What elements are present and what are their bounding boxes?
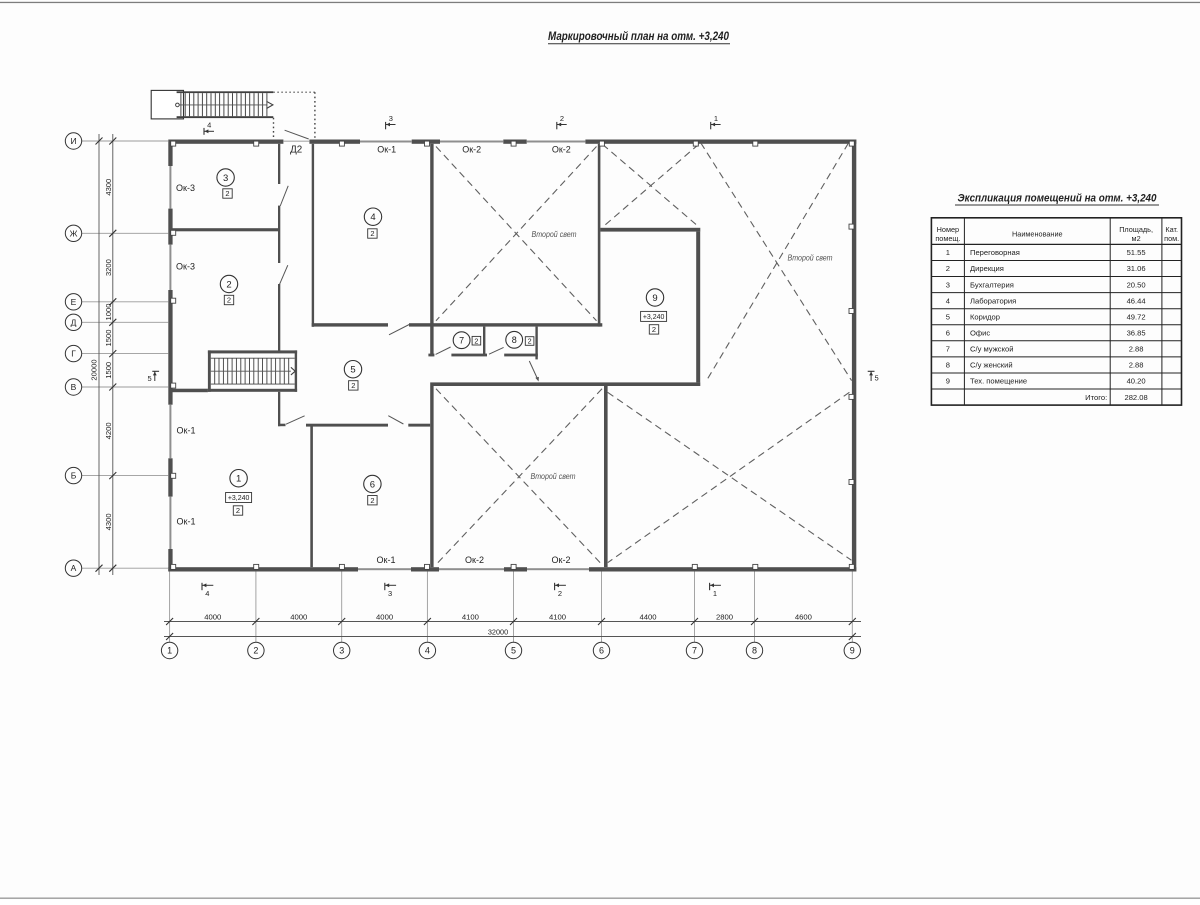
svg-text:Е: Е [71,297,77,307]
svg-text:2.88: 2.88 [1129,361,1144,370]
svg-text:Ок-3: Ок-3 [176,183,195,193]
svg-text:32000: 32000 [488,627,508,636]
svg-text:Д2: Д2 [290,145,302,156]
svg-text:Офис: Офис [970,329,990,338]
svg-text:Коридор: Коридор [970,312,1000,321]
svg-text:51.55: 51.55 [1127,248,1146,257]
svg-text:Экспликация помещений на отм.: Экспликация помещений на отм. +3,240 [958,192,1158,204]
svg-text:4: 4 [946,296,950,305]
svg-text:4300: 4300 [104,179,113,196]
svg-text:4600: 4600 [795,613,812,622]
svg-text:Кат.: Кат. [1165,225,1178,234]
svg-text:помещ.: помещ. [935,234,960,243]
svg-text:3: 3 [223,173,228,184]
svg-text:6: 6 [599,646,604,656]
svg-text:2: 2 [253,646,258,656]
svg-text:2: 2 [946,264,950,273]
svg-text:+3,240: +3,240 [643,312,665,321]
svg-text:9: 9 [946,377,950,386]
svg-text:8: 8 [946,361,950,370]
svg-text:Ок-1: Ок-1 [377,555,396,565]
svg-text:м2: м2 [1132,234,1141,243]
svg-text:Ок-2: Ок-2 [462,145,481,155]
svg-text:5: 5 [946,312,950,321]
svg-text:Лаборатория: Лаборатория [970,296,1016,305]
svg-text:2: 2 [370,496,374,505]
svg-text:2: 2 [652,325,656,334]
svg-text:5: 5 [350,365,355,376]
svg-text:Ок-2: Ок-2 [552,555,571,565]
svg-text:2: 2 [227,296,231,305]
svg-text:1: 1 [946,248,950,257]
svg-text:1500: 1500 [104,362,113,379]
svg-text:Г: Г [71,349,76,359]
svg-text:4: 4 [370,212,375,223]
svg-text:Ок-2: Ок-2 [552,145,571,155]
svg-text:4100: 4100 [549,613,566,622]
svg-text:Ок-2: Ок-2 [465,555,484,565]
svg-text:4200: 4200 [104,422,113,439]
svg-text:7: 7 [692,646,697,656]
svg-text:В: В [71,382,77,392]
svg-text:Маркировочный план на отм. +3,: Маркировочный план на отм. +3,240 [548,31,730,43]
svg-text:4000: 4000 [376,613,393,622]
svg-text:И: И [70,136,76,146]
svg-text:4: 4 [425,646,430,656]
svg-text:С/у мужской: С/у мужской [970,345,1013,354]
svg-text:8: 8 [752,646,757,656]
svg-text:Итого:: Итого: [1085,393,1107,402]
svg-text:5: 5 [511,646,516,656]
svg-text:2.88: 2.88 [1129,345,1144,354]
svg-text:1500: 1500 [104,330,113,347]
svg-text:Переговорная: Переговорная [970,248,1020,257]
svg-text:9: 9 [850,646,855,656]
svg-text:36.85: 36.85 [1127,329,1146,338]
svg-text:2: 2 [528,337,532,346]
svg-text:Дирекция: Дирекция [970,264,1004,273]
svg-text:Ок-3: Ок-3 [176,262,195,272]
svg-text:20000: 20000 [90,359,99,380]
svg-text:3: 3 [389,114,393,123]
svg-text:6: 6 [370,479,375,490]
svg-text:2: 2 [560,114,564,123]
svg-text:1: 1 [236,474,241,485]
svg-text:Б: Б [71,471,77,481]
svg-text:4000: 4000 [290,613,307,622]
svg-text:3: 3 [339,646,344,656]
svg-text:46.44: 46.44 [1127,296,1146,305]
svg-text:Второй свет: Второй свет [532,229,577,239]
svg-text:282.08: 282.08 [1124,393,1147,402]
svg-text:С/у женский: С/у женский [970,361,1013,370]
svg-text:Площадь,: Площадь, [1119,225,1153,234]
svg-text:4: 4 [207,121,211,130]
svg-text:1: 1 [713,589,717,598]
svg-text:1: 1 [714,114,718,123]
svg-text:2: 2 [236,506,240,515]
svg-text:2: 2 [225,189,229,198]
svg-text:Бухгалтерия: Бухгалтерия [970,280,1014,289]
svg-text:2: 2 [351,381,355,390]
svg-text:Тех. помещение: Тех. помещение [970,377,1027,386]
svg-text:3: 3 [946,280,950,289]
svg-text:1: 1 [167,646,172,656]
svg-text:4400: 4400 [639,613,656,622]
svg-text:Ок-1: Ок-1 [177,517,196,527]
svg-text:20.50: 20.50 [1127,280,1146,289]
svg-text:Второй свет: Второй свет [531,471,576,481]
svg-text:4: 4 [205,589,209,598]
svg-text:40.20: 40.20 [1127,377,1146,386]
svg-text:7: 7 [946,345,950,354]
svg-text:2: 2 [226,279,231,290]
svg-text:3: 3 [388,589,392,598]
svg-text:2800: 2800 [716,613,733,622]
svg-text:49.72: 49.72 [1127,312,1146,321]
svg-text:+3,240: +3,240 [228,493,250,502]
svg-text:2: 2 [558,589,562,598]
svg-text:4000: 4000 [204,613,221,622]
svg-text:пом.: пом. [1164,234,1179,243]
svg-text:5: 5 [148,374,152,383]
svg-text:2: 2 [370,229,374,238]
svg-text:8: 8 [512,335,517,345]
svg-text:А: А [71,563,77,573]
svg-text:4100: 4100 [462,613,479,622]
svg-text:Номер: Номер [937,225,959,234]
svg-text:6: 6 [946,329,950,338]
svg-text:3200: 3200 [104,259,113,276]
svg-text:2: 2 [474,336,478,345]
svg-text:Д: Д [71,317,77,327]
svg-text:Наименование: Наименование [1012,230,1063,239]
svg-text:1000: 1000 [104,304,113,321]
svg-text:Ок-1: Ок-1 [377,145,396,155]
svg-text:4300: 4300 [104,513,113,530]
svg-text:7: 7 [459,335,464,345]
svg-text:9: 9 [652,293,657,304]
svg-text:Ок-1: Ок-1 [177,426,196,436]
svg-text:5: 5 [875,374,879,383]
svg-text:31.06: 31.06 [1127,264,1146,273]
svg-text:Второй свет: Второй свет [788,253,833,263]
svg-text:Ж: Ж [70,228,78,238]
